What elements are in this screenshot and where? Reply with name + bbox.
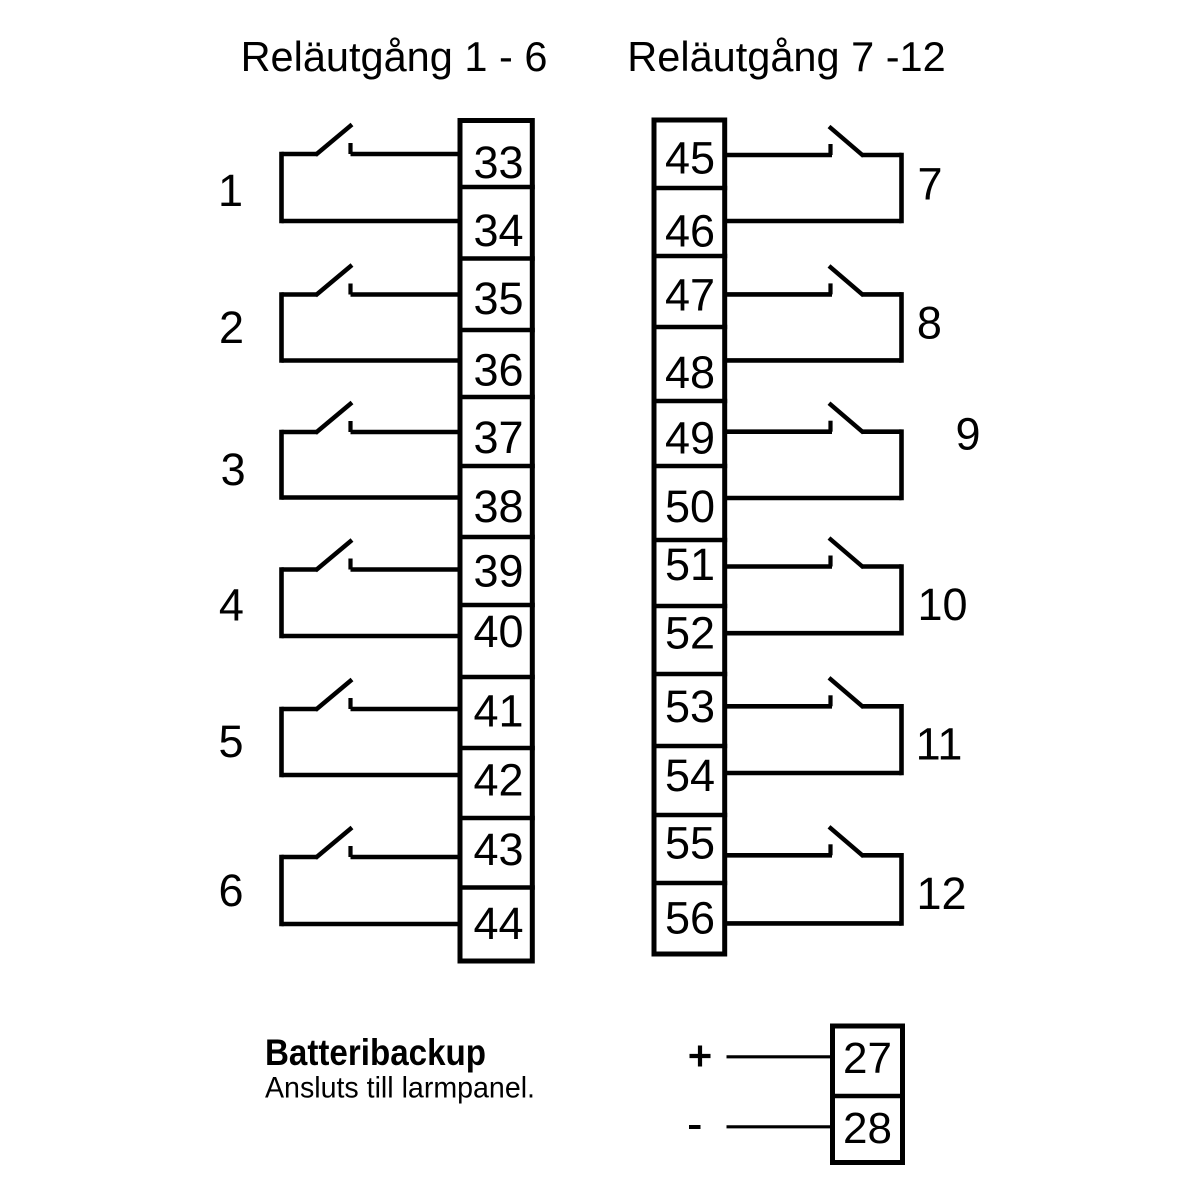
svg-text:11: 11: [916, 719, 963, 770]
svg-text:37: 37: [473, 412, 523, 463]
svg-text:28: 28: [843, 1104, 892, 1153]
svg-text:36: 36: [473, 345, 523, 396]
svg-text:1: 1: [218, 165, 243, 216]
svg-text:48: 48: [665, 347, 715, 398]
svg-text:38: 38: [473, 481, 523, 532]
svg-text:47: 47: [665, 270, 715, 321]
svg-text:Reläutgång 1 - 6: Reläutgång 1 - 6: [241, 33, 548, 80]
svg-text:43: 43: [473, 824, 523, 875]
svg-text:27: 27: [843, 1034, 892, 1083]
svg-text:Reläutgång 7 -12: Reläutgång 7 -12: [627, 33, 945, 80]
svg-text:42: 42: [473, 755, 523, 806]
svg-text:49: 49: [665, 412, 715, 463]
svg-text:39: 39: [473, 546, 523, 597]
svg-text:8: 8: [917, 298, 942, 349]
svg-text:6: 6: [218, 865, 243, 916]
svg-text:12: 12: [916, 868, 966, 919]
svg-text:44: 44: [473, 898, 523, 949]
svg-text:Batteribackup: Batteribackup: [265, 1031, 486, 1073]
svg-text:3: 3: [221, 444, 246, 495]
svg-text:53: 53: [665, 681, 715, 732]
svg-text:5: 5: [218, 716, 243, 767]
svg-text:40: 40: [473, 606, 523, 657]
svg-text:34: 34: [473, 205, 523, 256]
svg-text:54: 54: [665, 750, 715, 801]
svg-text:7: 7: [917, 158, 942, 209]
svg-text:9: 9: [955, 408, 980, 459]
svg-text:46: 46: [665, 206, 715, 257]
svg-text:10: 10: [917, 579, 967, 630]
svg-text:50: 50: [665, 481, 715, 532]
svg-text:55: 55: [665, 818, 715, 869]
svg-text:Ansluts till larmpanel.: Ansluts till larmpanel.: [265, 1072, 535, 1105]
svg-text:33: 33: [473, 137, 523, 188]
svg-text:52: 52: [665, 607, 715, 658]
svg-text:56: 56: [665, 892, 715, 943]
svg-text:35: 35: [473, 273, 523, 324]
svg-text:51: 51: [665, 539, 715, 590]
svg-text:45: 45: [665, 132, 715, 183]
svg-text:2: 2: [219, 302, 244, 353]
svg-text:4: 4: [219, 579, 244, 630]
svg-text:41: 41: [473, 686, 523, 737]
